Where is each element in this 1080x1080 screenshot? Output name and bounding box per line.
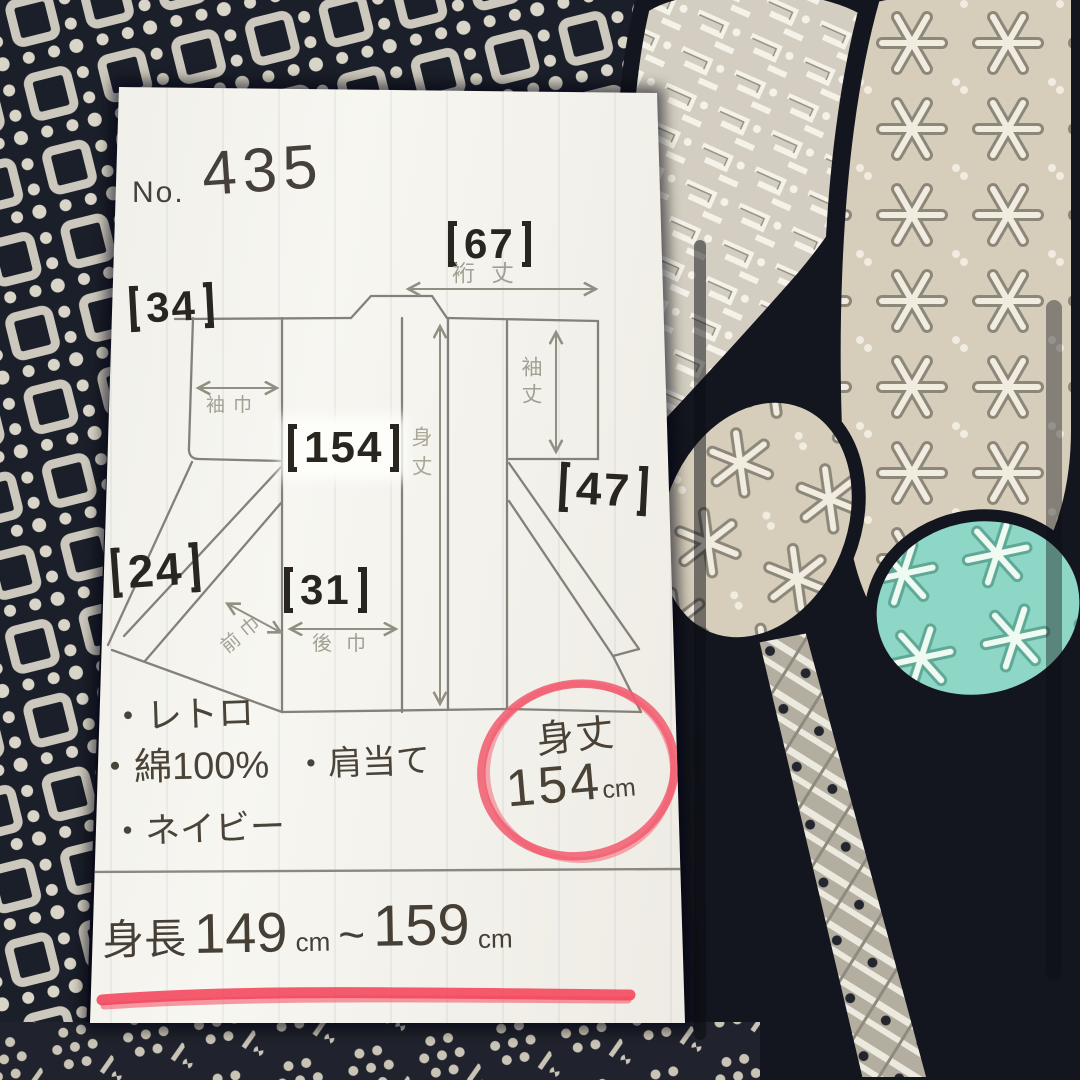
highlight-value: 154 — [504, 755, 604, 815]
height-label: 身長 — [102, 905, 187, 967]
sleeve-length-value: 47 — [568, 462, 640, 516]
height-from: 149 — [193, 899, 288, 966]
bullet-item-cotton: ・ 綿100% — [96, 746, 270, 787]
bullet-item-shoulder-pad: ・ 肩当て — [293, 744, 430, 783]
diagram-label-back-width: 後巾 — [312, 634, 380, 654]
highlight-label: 身丈 — [534, 714, 618, 760]
diagram-label-body-length: 身丈 — [410, 426, 431, 484]
bullet-text: ネイビー — [144, 809, 285, 849]
fabric-fold-shadow-2 — [1046, 300, 1062, 980]
bracket-left — [288, 424, 297, 472]
height-to-unit: cm — [478, 923, 513, 955]
front-width-value: 24 — [119, 543, 191, 598]
bullet-dot: ・ — [293, 747, 328, 782]
bullet-text: 綿100% — [134, 746, 270, 786]
bullet-dot: ・ — [109, 814, 145, 850]
bracket-left — [284, 567, 293, 613]
back-width-value: 31 — [293, 567, 358, 613]
measurement-tag-sleeve-length: 47 — [559, 462, 649, 516]
measurement-tag-body-length: 154 — [288, 424, 399, 472]
bracket-right — [358, 567, 367, 613]
sleeve-width-value: 34 — [138, 282, 205, 331]
bracket-right — [390, 424, 399, 472]
diagram-label-sleeve-width: 袖巾 — [206, 396, 260, 415]
fabric-flower-band — [0, 1022, 760, 1080]
height-tilde: ~ — [338, 907, 366, 961]
diagram-label-yuki: 裄丈 — [452, 262, 530, 285]
bullet-text: レトロ — [145, 694, 254, 734]
note-number-label: No. — [132, 178, 185, 208]
note-number-value: 435 — [200, 136, 325, 206]
body-length-value: 154 — [297, 424, 390, 472]
measurement-tag-sleeve-width: 34 — [129, 282, 214, 332]
bullet-text: 肩当て — [327, 744, 430, 782]
bullet-dot: ・ — [96, 749, 135, 788]
diagram-label-sleeve-length: 袖丈 — [520, 356, 541, 410]
bullet-item-navy: ・ ネイビー — [109, 809, 285, 850]
bullet-item-retro: ・ レトロ — [109, 694, 254, 735]
height-to: 159 — [372, 891, 470, 960]
measurement-tag-back-width: 31 — [284, 567, 367, 613]
fabric-fold-shadow — [694, 240, 706, 1040]
measurement-tag-front-width: 24 — [110, 542, 200, 598]
height-from-unit: cm — [295, 927, 330, 959]
highlight-unit: cm — [601, 775, 636, 803]
height-range-line: 身長 149 cm ~ 159 cm — [101, 894, 513, 968]
bullet-dot: ・ — [109, 698, 146, 735]
photo-scene: No. 435 67 34 154 47 24 — [0, 0, 1080, 1080]
